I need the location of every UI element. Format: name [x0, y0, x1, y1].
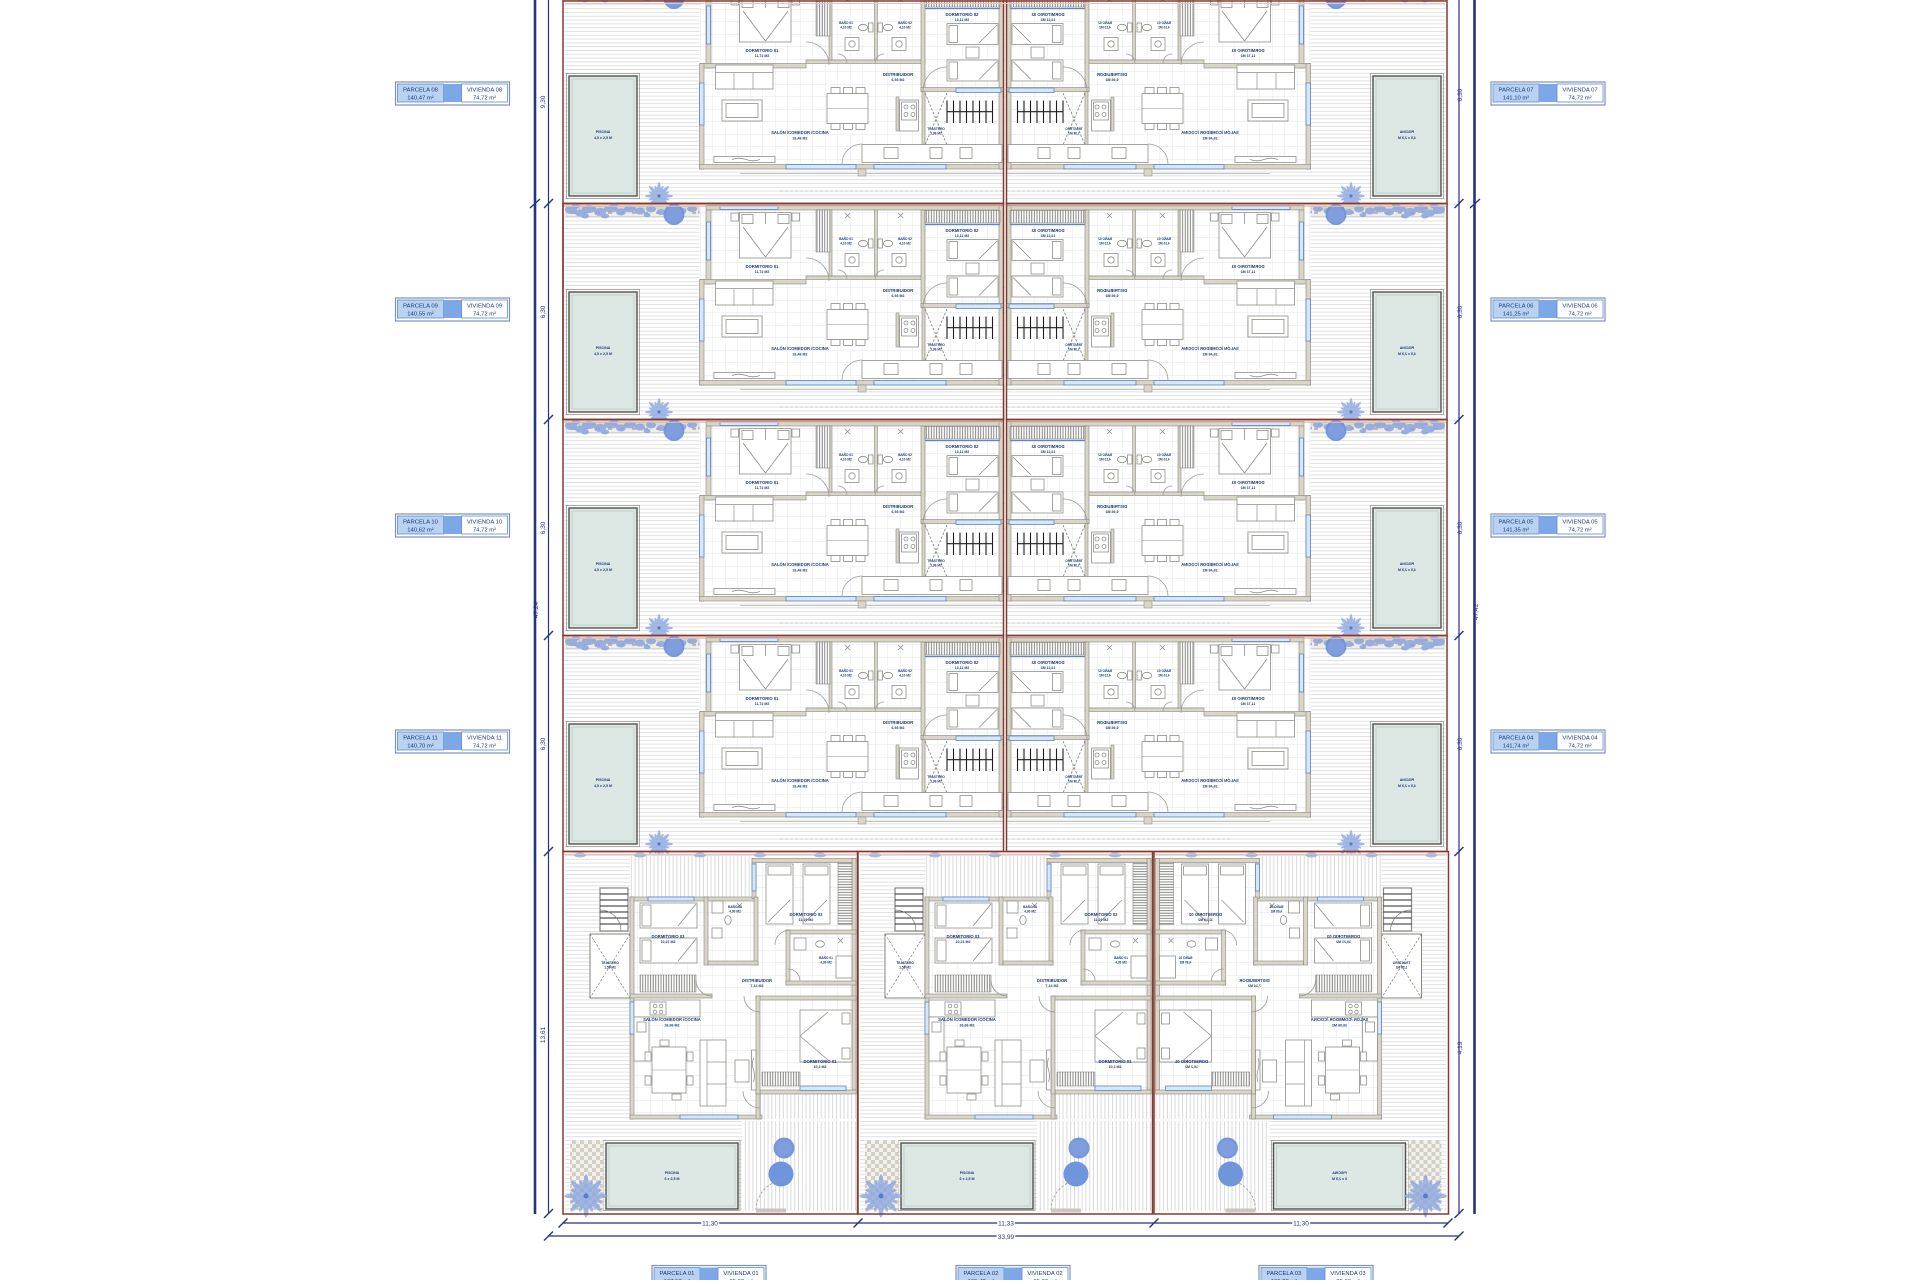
- svg-text:1,58 M2: 1,58 M2: [604, 966, 616, 970]
- svg-text:6,30: 6,30: [1457, 305, 1464, 318]
- svg-text:74,72 m²: 74,72 m²: [1568, 96, 1591, 102]
- svg-text:47,42: 47,42: [1473, 603, 1480, 620]
- svg-text:74,72 m²: 74,72 m²: [473, 744, 496, 750]
- svg-text:140,47 m²: 140,47 m²: [407, 96, 434, 102]
- svg-text:11,30: 11,30: [702, 1221, 718, 1228]
- svg-text:SALÓN /COMEDOR /COCINA: SALÓN /COMEDOR /COCINA: [643, 1017, 701, 1022]
- svg-text:6,30: 6,30: [540, 737, 547, 750]
- svg-text:VIVIENDA 08: VIVIENDA 08: [467, 88, 503, 94]
- svg-text:PARCELA 08: PARCELA 08: [403, 88, 439, 94]
- svg-text:74,72 m²: 74,72 m²: [1568, 528, 1591, 534]
- svg-text:PARCELA 04: PARCELA 04: [1499, 736, 1535, 742]
- svg-text:74,72 m²: 74,72 m²: [1568, 312, 1591, 318]
- svg-text:47,24: 47,24: [533, 601, 540, 618]
- svg-text:VIVIENDA 03: VIVIENDA 03: [1330, 1271, 1366, 1277]
- svg-text:140,55 m²: 140,55 m²: [407, 312, 434, 318]
- svg-text:9,30: 9,30: [540, 95, 547, 108]
- svg-text:PARCELA 07: PARCELA 07: [1499, 88, 1534, 94]
- svg-text:10,21 M2: 10,21 M2: [661, 940, 676, 944]
- svg-text:74,72 m²: 74,72 m²: [473, 312, 496, 318]
- svg-text:PARCELA 09: PARCELA 09: [403, 304, 438, 310]
- svg-text:141,35 m²: 141,35 m²: [1503, 528, 1530, 534]
- svg-text:VIVIENDA 09: VIVIENDA 09: [467, 304, 502, 310]
- svg-text:VIVIENDA 07: VIVIENDA 07: [1562, 88, 1597, 94]
- svg-text:PARCELA 02: PARCELA 02: [964, 1271, 999, 1277]
- svg-text:11,19 M2: 11,19 M2: [799, 918, 814, 922]
- svg-text:DORMITORIO 01: DORMITORIO 01: [804, 1059, 838, 1064]
- svg-text:BAÑO 02: BAÑO 02: [728, 904, 742, 909]
- svg-text:141,25 m²: 141,25 m²: [1503, 312, 1530, 318]
- svg-text:DORMITORIO 03: DORMITORIO 03: [652, 934, 686, 939]
- svg-text:6 x 2,5 M: 6 x 2,5 M: [665, 1177, 680, 1181]
- svg-text:PARCELA 05: PARCELA 05: [1499, 520, 1535, 526]
- svg-text:140,70 m²: 140,70 m²: [407, 744, 434, 750]
- svg-text:VIVIENDA 04: VIVIENDA 04: [1562, 736, 1598, 742]
- svg-text:DISTRIBUIDOR: DISTRIBUIDOR: [742, 978, 772, 983]
- svg-text:VIVIENDA 02: VIVIENDA 02: [1027, 1271, 1062, 1277]
- svg-text:74,72 m²: 74,72 m²: [473, 528, 496, 534]
- svg-text:4,30 M2: 4,30 M2: [820, 961, 832, 965]
- svg-text:PARCELA 11: PARCELA 11: [403, 736, 438, 742]
- svg-text:PARCELA 01: PARCELA 01: [660, 1271, 695, 1277]
- svg-text:PARCELA 03: PARCELA 03: [1267, 1271, 1303, 1277]
- svg-text:6,30: 6,30: [540, 305, 547, 318]
- svg-text:TRASTERO: TRASTERO: [601, 961, 619, 965]
- svg-text:33,99: 33,99: [998, 1234, 1015, 1241]
- svg-text:74,72 m²: 74,72 m²: [473, 96, 496, 102]
- svg-text:141,74 m²: 141,74 m²: [1503, 744, 1530, 750]
- svg-text:VIVIENDA 11: VIVIENDA 11: [467, 736, 502, 742]
- svg-text:141,10 m²: 141,10 m²: [1503, 96, 1530, 102]
- svg-text:6,30: 6,30: [1457, 737, 1464, 750]
- svg-text:11,33: 11,33: [998, 1221, 1014, 1228]
- svg-text:140,62 m²: 140,62 m²: [407, 528, 434, 534]
- svg-text:74,72 m²: 74,72 m²: [1568, 744, 1591, 750]
- svg-text:DORMITORIO 02: DORMITORIO 02: [790, 912, 824, 917]
- svg-text:BAÑO 01: BAÑO 01: [819, 955, 833, 960]
- svg-text:PARCELA 10: PARCELA 10: [403, 520, 439, 526]
- svg-text:10,2 M2: 10,2 M2: [814, 1065, 827, 1069]
- svg-text:13,61: 13,61: [540, 1026, 547, 1043]
- svg-text:6,30: 6,30: [1457, 521, 1464, 534]
- svg-text:PARCELA 06: PARCELA 06: [1499, 304, 1535, 310]
- svg-text:6,30: 6,30: [1457, 88, 1464, 101]
- svg-text:7,14 M2: 7,14 M2: [751, 984, 764, 988]
- svg-text:11,30: 11,30: [1293, 1221, 1309, 1228]
- svg-text:4,19: 4,19: [1457, 1041, 1464, 1054]
- svg-text:26,06 M2: 26,06 M2: [665, 1024, 680, 1028]
- svg-text:VIVIENDA 10: VIVIENDA 10: [467, 520, 503, 526]
- svg-text:VIVIENDA 05: VIVIENDA 05: [1562, 520, 1598, 526]
- svg-text:PISCINA: PISCINA: [665, 1171, 680, 1175]
- svg-text:VIVIENDA 06: VIVIENDA 06: [1562, 304, 1598, 310]
- svg-text:6,30: 6,30: [540, 521, 547, 534]
- svg-text:4,00 M2: 4,00 M2: [729, 910, 741, 914]
- svg-text:VIVIENDA 01: VIVIENDA 01: [723, 1271, 758, 1277]
